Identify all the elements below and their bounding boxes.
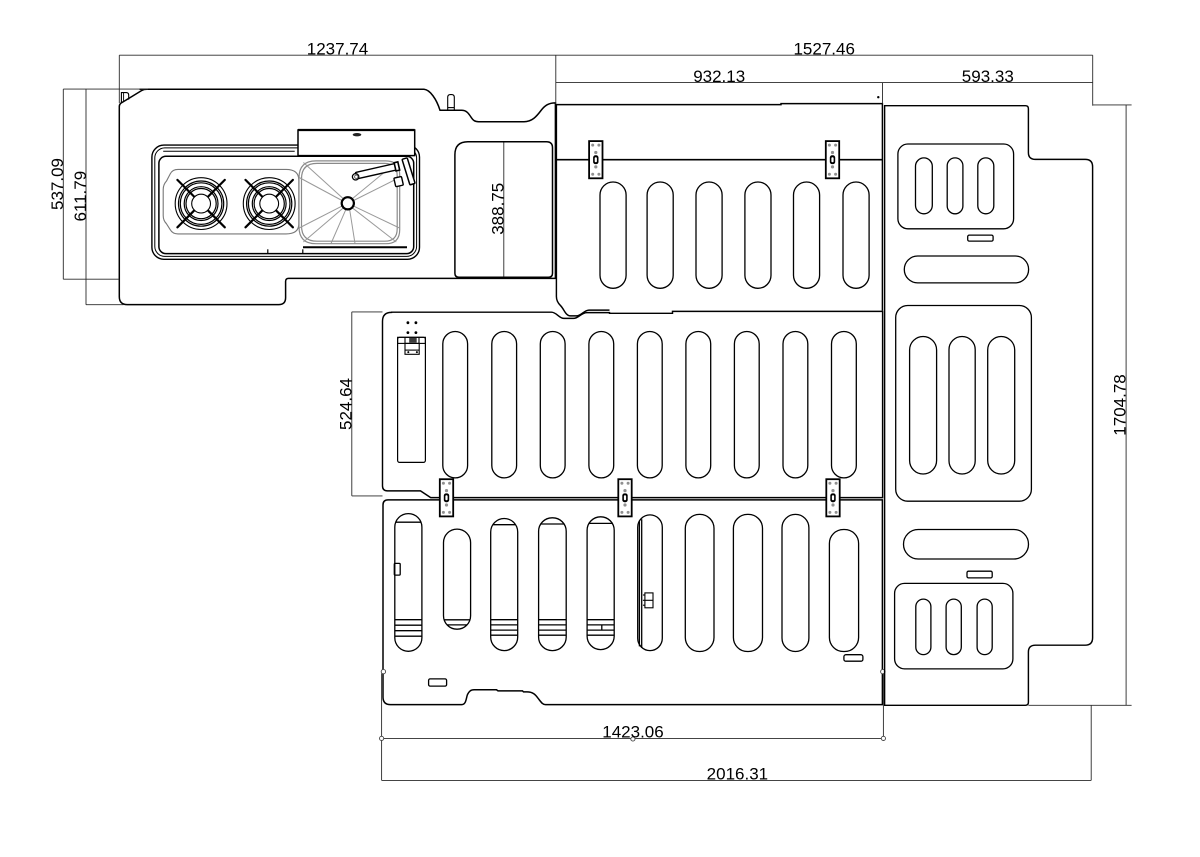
svg-text:524.64: 524.64 [336, 378, 355, 430]
svg-text:1423.06: 1423.06 [602, 723, 663, 742]
svg-text:1527.46: 1527.46 [793, 39, 854, 58]
svg-text:611.79: 611.79 [71, 171, 90, 222]
svg-text:537.09: 537.09 [48, 158, 67, 210]
svg-text:593.33: 593.33 [962, 67, 1014, 86]
svg-text:932.13: 932.13 [693, 67, 745, 86]
svg-text:1704.78: 1704.78 [1111, 374, 1130, 435]
svg-text:1237.74: 1237.74 [307, 39, 368, 58]
svg-text:388.75: 388.75 [488, 183, 507, 235]
svg-text:2016.31: 2016.31 [707, 765, 768, 784]
